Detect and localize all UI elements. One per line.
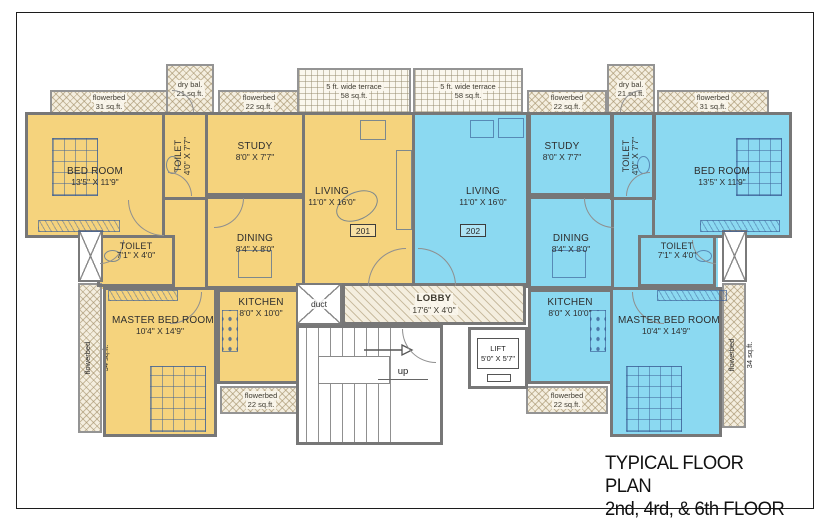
flowerbed-area: 22 sq.ft. <box>552 102 583 111</box>
room-name: STUDY <box>522 141 602 153</box>
label-toilet-top-202: TOILET 4'0" X 7'7" <box>621 111 645 201</box>
label-bedroom-201: BED ROOM 13'5" X 11'9" <box>35 166 155 187</box>
flowerbed-22-top-left: flowerbed22 sq.ft. <box>218 90 300 114</box>
room-name: BED ROOM <box>662 166 782 178</box>
terrace-left: 5 ft. wide terrace58 sq.ft. <box>297 68 411 114</box>
flowerbed-area: 22 sq.ft. <box>552 400 583 409</box>
room-dim: 8'0" X 7'7" <box>215 153 295 163</box>
chair-living-202 <box>470 120 494 138</box>
flowerbed-31-right: flowerbed31 sq.ft. <box>657 90 769 114</box>
room-name: LIVING <box>292 186 372 198</box>
room-name: BED ROOM <box>35 166 155 178</box>
lift-cabin: LIFT 5'0" X 5'7" <box>477 338 519 369</box>
lobby: LOBBY 17'6" X 4'0" <box>342 283 526 325</box>
terrace-area: 58 sq.ft. <box>339 91 370 100</box>
room-dim: 10'4" X 14'9" <box>618 327 714 337</box>
flowerbed-label: flowerbed <box>83 342 92 375</box>
lobby-label: LOBBY <box>415 293 454 304</box>
room-dim: 10'4" X 14'9" <box>112 327 208 337</box>
label-study-202: STUDY 8'0" X 7'7" <box>522 141 602 162</box>
room-name: LIVING <box>443 186 523 198</box>
room-name: STUDY <box>215 141 295 153</box>
armchair-living-201 <box>360 120 386 140</box>
label-living-202: LIVING 11'0" X 16'0" <box>443 186 523 207</box>
room-dim: 13'5" X 11'9" <box>35 178 155 188</box>
lift-door-slot <box>487 374 511 382</box>
armchair-living-202 <box>498 118 524 138</box>
stair-up-label: up <box>378 366 428 380</box>
terrace-label: 5 ft. wide terrace <box>438 82 497 91</box>
room-dim: 8'4" X 8'0" <box>531 245 611 255</box>
wardrobe-master-201 <box>108 290 178 301</box>
flowerbed-area: 31 sq.ft. <box>94 102 125 111</box>
unit-number-201: 201 <box>350 224 376 237</box>
plan-title-line2: 2nd, 4rd, & 6th FLOOR <box>605 498 794 521</box>
label-living-201: LIVING 11'0" X 16'0" <box>292 186 372 207</box>
lift-label: LIFT <box>490 344 505 353</box>
label-kitchen-201: KITCHEN 8'0" X 10'0" <box>226 297 296 318</box>
wardrobe-bedroom-202 <box>700 220 780 232</box>
label-dining-202: DINING 8'4" X 8'0" <box>531 233 611 254</box>
room-dim: 8'0" X 7'7" <box>522 153 602 163</box>
lift-dim: 5'0" X 5'7" <box>481 354 515 363</box>
room-name: KITCHEN <box>535 297 605 309</box>
room-dim: 11'0" X 16'0" <box>292 198 372 208</box>
unit-number-202: 202 <box>460 224 486 237</box>
room-name: MASTER BED ROOM <box>112 315 208 327</box>
floor-plan-canvas: flowerbed31 sq.ft. dry bal.21 sq.ft. flo… <box>0 0 832 524</box>
flowerbed-label: flowerbed <box>549 93 586 102</box>
room-dim: 8'0" X 10'0" <box>535 309 605 319</box>
label-master-202: MASTER BED ROOM 10'4" X 14'9" <box>618 315 714 336</box>
column-right <box>722 230 747 282</box>
flowerbed-label: flowerbed <box>727 339 736 372</box>
flowerbed-label: flowerbed <box>549 391 586 400</box>
flowerbed-22-bottom-left: flowerbed22 sq.ft. <box>220 386 302 414</box>
wardrobe-master-202 <box>657 290 727 301</box>
flowerbed-area: 22 sq.ft. <box>246 400 277 409</box>
flowerbed-34-right-label: flowerbed 34 sq.ft. <box>721 280 747 430</box>
room-name: MASTER BED ROOM <box>618 315 714 327</box>
room-name: DINING <box>215 233 295 245</box>
flowerbed-34-left-label: flowerbed 34 sq.ft. <box>77 283 103 433</box>
label-toilet2-202: TOILET 7'1" X 4'0" <box>644 241 710 261</box>
room-dim: 7'1" X 4'0" <box>644 251 710 261</box>
label-dining-201: DINING 8'4" X 8'0" <box>215 233 295 254</box>
room-dim: 8'0" X 10'0" <box>226 309 296 319</box>
label-bedroom-202: BED ROOM 13'5" X 11'9" <box>662 166 782 187</box>
room-dim: 13'5" X 11'9" <box>662 178 782 188</box>
duct-shaft: duct <box>296 283 342 325</box>
flowerbed-label: flowerbed <box>695 93 732 102</box>
lobby-dim: 17'6" X 4'0" <box>410 305 457 315</box>
dry-bal-label: dry bal. <box>617 80 646 89</box>
plan-title: TYPICAL FLOOR PLAN 2nd, 4rd, & 6th FLOOR <box>605 452 794 521</box>
room-dim: 8'4" X 8'0" <box>215 245 295 255</box>
flowerbed-area: 22 sq.ft. <box>244 102 275 111</box>
terrace-area: 58 sq.ft. <box>453 91 484 100</box>
bed-master-202 <box>626 366 682 432</box>
label-master-201: MASTER BED ROOM 10'4" X 14'9" <box>112 315 208 336</box>
room-dim: 7'1" X 4'0" <box>103 251 169 261</box>
flowerbed-22-top-right: flowerbed22 sq.ft. <box>527 90 607 114</box>
bed-master-201 <box>150 366 206 432</box>
duct-label: duct <box>310 299 328 309</box>
plan-title-line1: TYPICAL FLOOR PLAN <box>605 452 794 498</box>
flowerbed-area: 31 sq.ft. <box>698 102 729 111</box>
flowerbed-label: flowerbed <box>243 391 280 400</box>
label-toilet2-201: TOILET 7'1" X 4'0" <box>103 241 169 261</box>
flowerbed-label: flowerbed <box>91 93 128 102</box>
room-dim: 11'0" X 16'0" <box>443 198 523 208</box>
room-dim: 4'0" X 7'7" <box>183 111 193 201</box>
label-toilet-top-201: TOILET 4'0" X 7'7" <box>173 111 197 201</box>
sofa-living-201 <box>396 150 412 230</box>
label-kitchen-202: KITCHEN 8'0" X 10'0" <box>535 297 605 318</box>
label-study-201: STUDY 8'0" X 7'7" <box>215 141 295 162</box>
room-name: DINING <box>531 233 611 245</box>
flowerbed-31-left: flowerbed31 sq.ft. <box>50 90 168 114</box>
wardrobe-bedroom-201 <box>38 220 120 232</box>
flowerbed-label: flowerbed <box>241 93 278 102</box>
terrace-label: 5 ft. wide terrace <box>324 82 383 91</box>
room-dim: 4'0" X 7'7" <box>631 111 641 201</box>
dry-bal-label: dry bal. <box>176 80 205 89</box>
terrace-right: 5 ft. wide terrace58 sq.ft. <box>413 68 523 114</box>
flowerbed-22-bottom-right: flowerbed22 sq.ft. <box>526 386 608 414</box>
room-name: KITCHEN <box>226 297 296 309</box>
flowerbed-area: 34 sq.ft. <box>745 342 754 369</box>
